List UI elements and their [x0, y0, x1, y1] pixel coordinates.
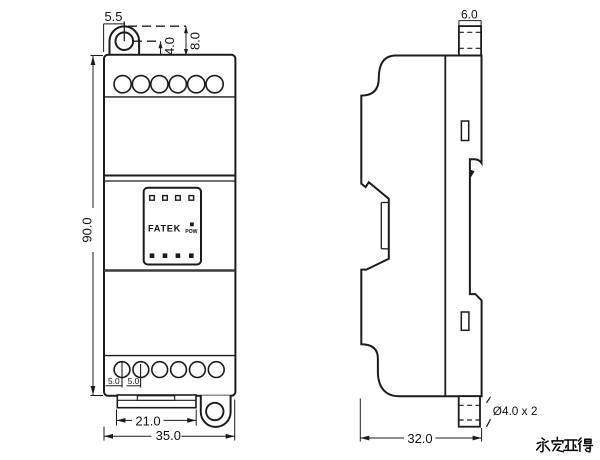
- svg-text:Ø4.0 x 2: Ø4.0 x 2: [493, 404, 538, 418]
- svg-text:6.0: 6.0: [461, 8, 478, 22]
- svg-text:5.0: 5.0: [108, 376, 120, 386]
- svg-text:FATEK: FATEK: [148, 223, 181, 233]
- svg-text:4.0: 4.0: [162, 37, 177, 55]
- svg-text:POW: POW: [185, 229, 197, 235]
- svg-text:5.5: 5.5: [104, 9, 122, 24]
- svg-text:32.0: 32.0: [407, 431, 432, 446]
- svg-text:8.0: 8.0: [188, 32, 203, 50]
- svg-text:5.0: 5.0: [128, 376, 140, 386]
- svg-text:21.0: 21.0: [135, 413, 160, 428]
- svg-text:35.0: 35.0: [156, 428, 181, 443]
- svg-text:90.0: 90.0: [80, 217, 95, 242]
